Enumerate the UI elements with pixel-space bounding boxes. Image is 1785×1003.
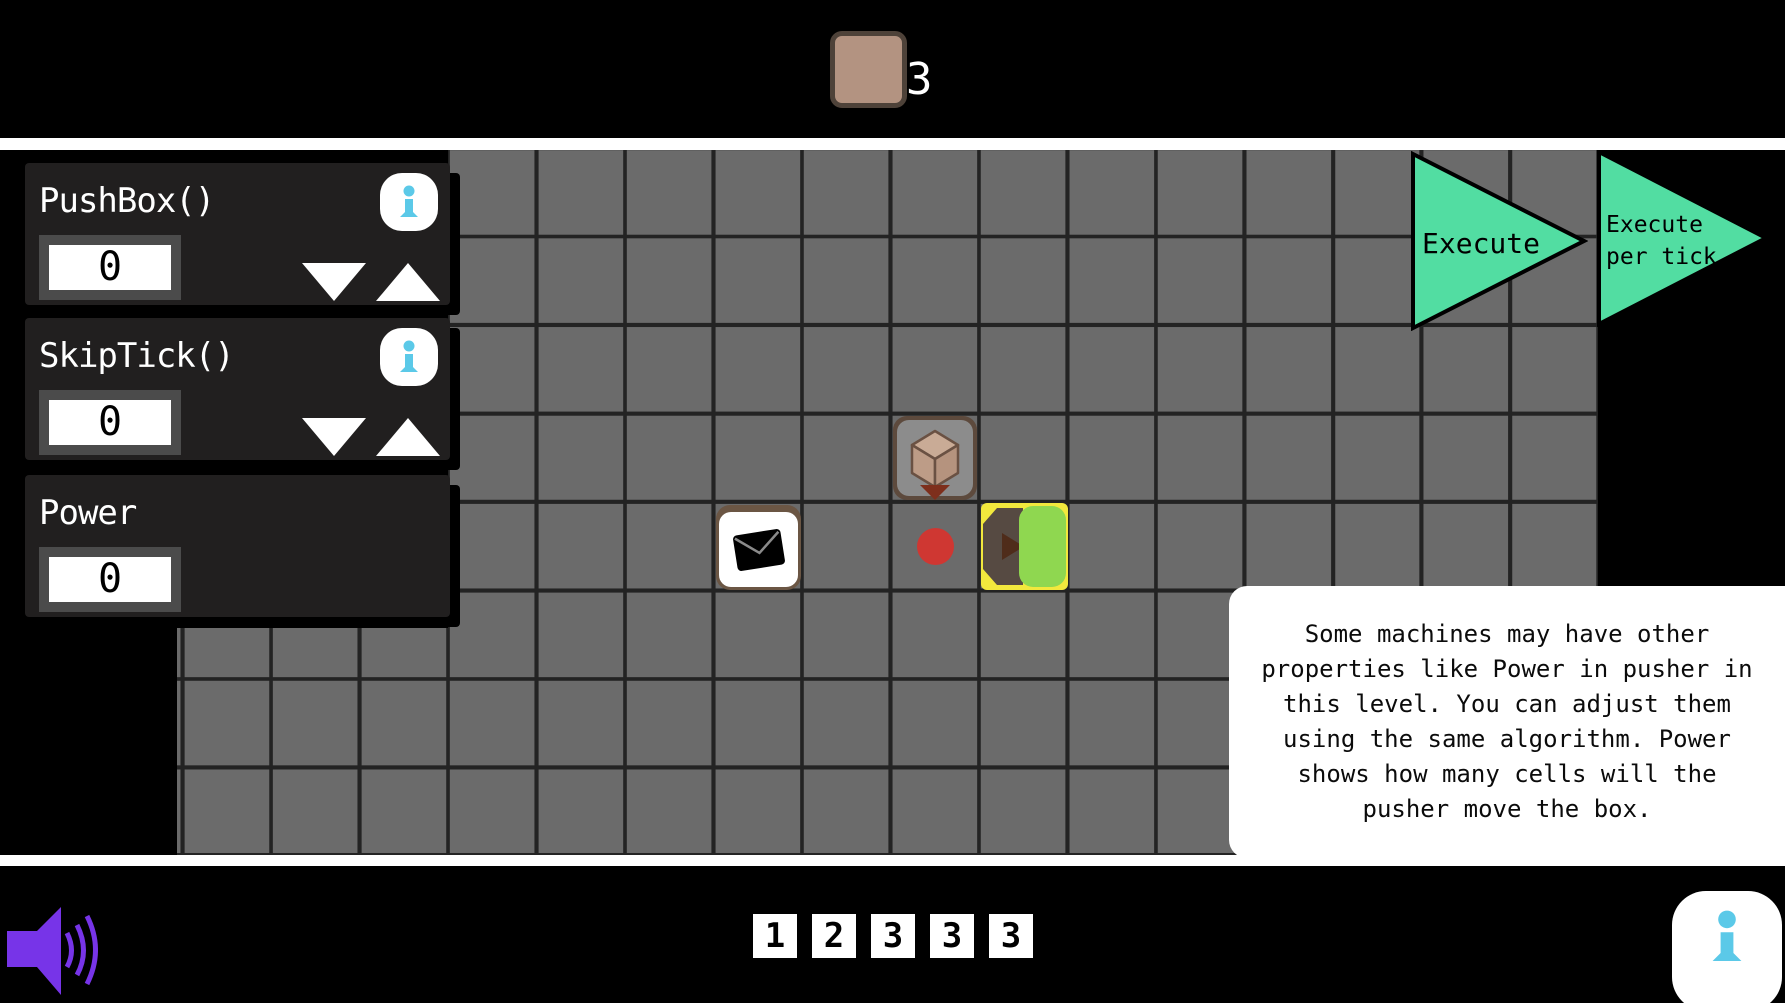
panel-pushbox: PushBox() 0 [25, 163, 450, 305]
pushbox-value-input[interactable]: 0 [39, 235, 181, 300]
level-button-1[interactable]: 1 [753, 914, 797, 958]
pushbox-increment-button[interactable] [376, 263, 440, 301]
execute-per-tick-button[interactable]: Execute per tick [1596, 149, 1770, 327]
envelope-icon [731, 527, 786, 572]
tutorial-box: Some machines may have other properties … [1229, 586, 1785, 858]
speaker-icon [6, 903, 98, 999]
envelope-cell-background [719, 512, 798, 587]
info-icon [389, 337, 429, 377]
level-button-3[interactable]: 3 [871, 914, 915, 958]
cube-icon [905, 427, 965, 489]
mute-toggle-button[interactable] [6, 903, 98, 999]
tutorial-text: Some machines may have other properties … [1254, 617, 1760, 827]
crate-count-label: 3 [906, 56, 933, 104]
pushbox-info-button[interactable] [380, 173, 438, 231]
spawner-cell-background [897, 420, 973, 496]
level-button-5[interactable]: 3 [989, 914, 1033, 958]
skiptick-increment-button[interactable] [376, 418, 440, 456]
help-info-button[interactable] [1672, 891, 1782, 1003]
execute-per-tick-label: Execute per tick [1606, 209, 1717, 273]
pushbox-decrement-button[interactable] [302, 263, 366, 301]
skiptick-value-input[interactable]: 0 [39, 390, 181, 455]
delivery-target-cell[interactable] [716, 505, 801, 590]
info-icon [389, 182, 429, 222]
level-button-2[interactable]: 2 [812, 914, 856, 958]
level-button-4[interactable]: 3 [930, 914, 974, 958]
top-divider [0, 138, 1785, 150]
execute-button[interactable]: Execute [1410, 151, 1588, 331]
box-spawner-machine[interactable] [893, 416, 977, 500]
level-selector: 1 2 3 3 3 [753, 914, 1033, 958]
panel-skiptick: SkipTick() 0 [25, 318, 450, 460]
pusher-machine[interactable] [981, 503, 1068, 590]
game-screen: 3 PushBox() 0 SkipTick() 0 Power 0 [0, 0, 1785, 1003]
pusher-body [1019, 506, 1066, 587]
skiptick-decrement-button[interactable] [302, 418, 366, 456]
execute-button-label: Execute [1422, 227, 1540, 260]
pushbox-label: PushBox() [39, 181, 214, 221]
panel-power: Power 0 [25, 475, 450, 617]
power-label: Power [39, 493, 136, 533]
skiptick-label: SkipTick() [39, 336, 234, 376]
skiptick-info-button[interactable] [380, 328, 438, 386]
power-value-input[interactable]: 0 [39, 547, 181, 612]
crate-counter-icon [830, 31, 907, 108]
info-icon [1695, 905, 1759, 969]
red-dot-marker [917, 528, 954, 565]
